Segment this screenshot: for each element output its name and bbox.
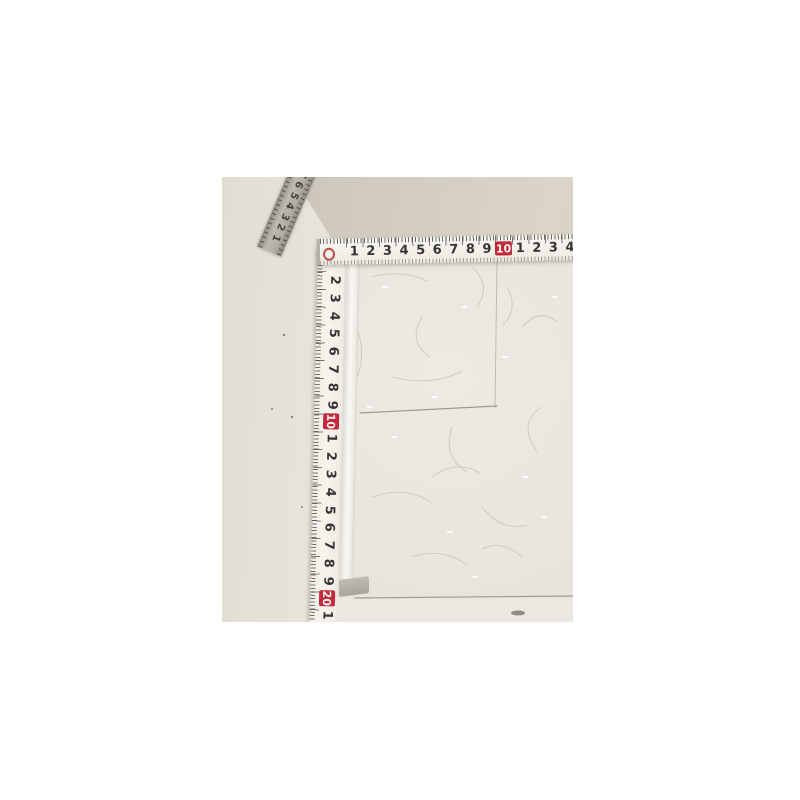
- v-ruler-number: 9: [318, 572, 336, 590]
- v-ruler-number: 2: [321, 447, 339, 465]
- diag-ruler-number: 1: [269, 232, 282, 243]
- h-ruler-number: 8: [462, 242, 479, 258]
- diag-ruler-number: 3: [278, 211, 291, 222]
- h-ruler-number: 1: [346, 244, 363, 260]
- v-ruler-number: 9: [322, 396, 340, 414]
- h-ruler-number: 2: [362, 244, 379, 260]
- v-ruler-number: 7: [323, 360, 341, 378]
- h-ruler-number: 4: [396, 243, 413, 259]
- diag-ruler-number: 5: [287, 189, 300, 200]
- v-ruler-number-10-badge: 10: [323, 414, 339, 430]
- v-ruler-number: 7: [319, 536, 337, 554]
- v-ruler-number: 3: [325, 289, 343, 307]
- v-ruler-number: 4: [324, 307, 342, 325]
- h-ruler-number: 4: [562, 240, 573, 256]
- v-ruler-number: 1: [322, 429, 340, 447]
- measuring-photo: 1 2 3 4 5 6 7 2 3 4 5 6 7 8 9 10 1: [222, 177, 573, 622]
- v-ruler-number: 8: [323, 378, 341, 396]
- horizontal-tape-ruler: 1 2 3 4 5 6 7 8 9 10 1 2 3 4: [317, 234, 573, 265]
- v-ruler-number: 2: [325, 271, 343, 289]
- v-ruler-number: 8: [319, 554, 337, 572]
- diag-ruler-number: 7: [296, 177, 309, 179]
- v-ruler-number: 5: [320, 501, 338, 519]
- h-ruler-number: 7: [445, 242, 462, 258]
- h-ruler-number: 2: [528, 241, 545, 257]
- diag-ruler-number: 6: [291, 179, 304, 190]
- h-ruler-number: 9: [479, 242, 496, 258]
- v-ruler-number: 4: [320, 483, 338, 501]
- h-ruler-number: 3: [545, 240, 562, 256]
- v-ruler-number-20-badge: 20: [319, 590, 335, 606]
- v-ruler-number: 5: [324, 324, 342, 342]
- h-ruler-number: 3: [379, 243, 396, 259]
- h-ruler-number: 6: [429, 243, 446, 259]
- h-ruler-number: 1: [512, 241, 529, 257]
- diag-ruler-number: 2: [273, 221, 286, 232]
- v-ruler-number: 1: [318, 606, 336, 622]
- h-ruler-number-10-badge: 10: [495, 241, 512, 255]
- red-zero-ring-icon: [323, 248, 335, 261]
- diag-ruler-number: 4: [282, 200, 295, 211]
- v-ruler-number: 6: [320, 518, 338, 536]
- page-background: 1 2 3 4 5 6 7 2 3 4 5 6 7 8 9 10 1: [0, 0, 800, 800]
- h-ruler-number: 5: [412, 243, 429, 259]
- v-ruler-number: 6: [324, 342, 342, 360]
- v-ruler-number: 3: [321, 465, 339, 483]
